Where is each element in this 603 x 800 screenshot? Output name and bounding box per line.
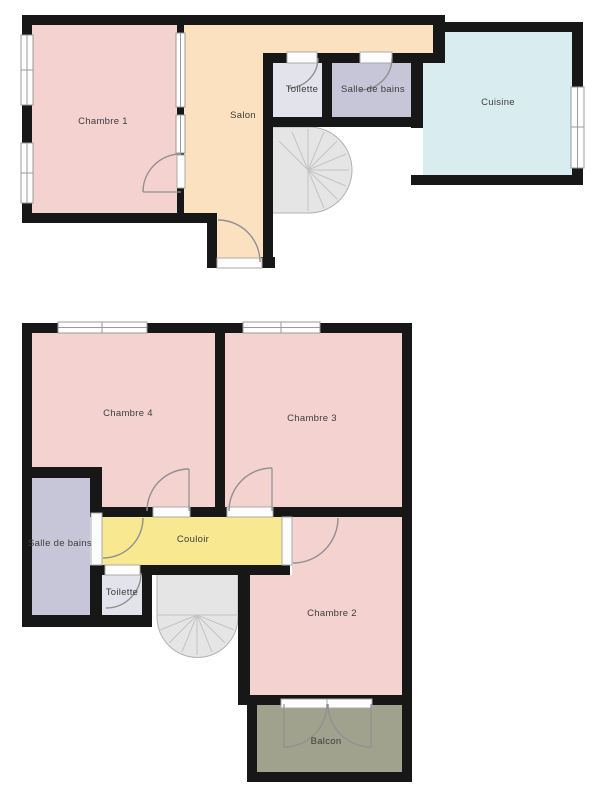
label-balcon: Balcon [311, 736, 342, 747]
label-chambre-1: Chambre 1 [78, 116, 128, 127]
label-salon: Salon [230, 110, 256, 121]
upper-floor: Chambre 1 Salon Toilette Salle de bains … [21, 15, 584, 268]
label-salle-de-bains-upper: Salle de bains [341, 84, 405, 95]
door-opening-salle-de-bains-upper [360, 52, 392, 63]
label-couloir: Couloir [177, 534, 209, 545]
label-cuisine: Cuisine [481, 97, 515, 108]
door-opening-toilette-upper [287, 52, 317, 63]
floorplan-canvas: Chambre 1 Salon Toilette Salle de bains … [0, 0, 603, 800]
door-opening-salle-de-bains-lower [91, 513, 102, 565]
window-chambre4-top [58, 322, 147, 333]
spiral-staircase-lower [157, 571, 238, 657]
window-chambre3-top [243, 322, 320, 333]
door-opening-chambre1 [177, 155, 185, 188]
door-opening-chambre2 [282, 517, 292, 565]
spiral-staircase-upper [267, 127, 352, 213]
label-chambre-4: Chambre 4 [103, 408, 153, 419]
label-salle-de-bains-lower: Salle de bains [28, 538, 92, 549]
label-chambre-3: Chambre 3 [287, 413, 337, 424]
window-chambre1-left-1 [21, 35, 33, 105]
window-cuisine-right [571, 87, 584, 168]
window-partition-1 [176, 33, 185, 107]
floorplan-page: Chambre 1 Salon Toilette Salle de bains … [0, 0, 603, 800]
window-partition-2 [176, 115, 185, 153]
label-toilette-lower: Toilette [106, 587, 139, 598]
door-opening-toilette-lower [105, 565, 140, 575]
label-chambre-2: Chambre 2 [307, 608, 357, 619]
entrance-door-opening [217, 258, 262, 268]
lower-floor: Chambre 4 Chambre 3 Salle de bains Coulo… [22, 322, 412, 782]
window-chambre1-left-2 [21, 143, 33, 203]
door-opening-chambre4 [153, 507, 190, 517]
door-opening-chambre3 [227, 507, 273, 517]
label-toilette-upper: Toilette [286, 84, 319, 95]
